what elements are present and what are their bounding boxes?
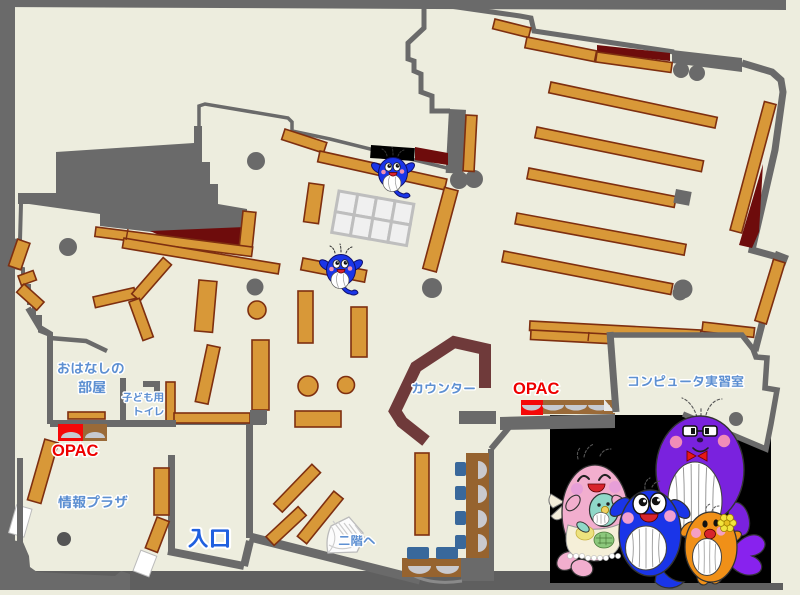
- svg-text:OPAC: OPAC: [513, 380, 560, 398]
- svg-text:OPAC: OPAC: [52, 442, 99, 460]
